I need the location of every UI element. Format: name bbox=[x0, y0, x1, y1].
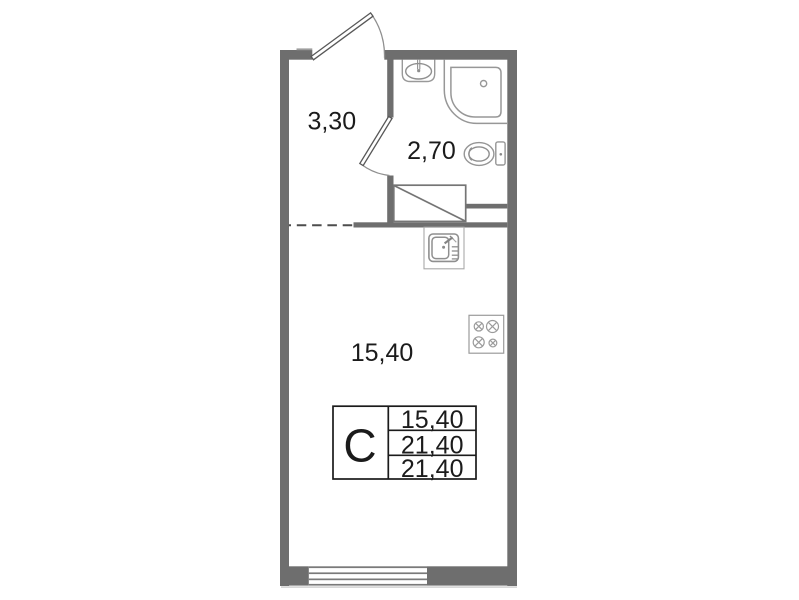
svg-text:21,40: 21,40 bbox=[401, 455, 464, 483]
svg-text:2,70: 2,70 bbox=[407, 137, 456, 165]
svg-text:15,40: 15,40 bbox=[351, 339, 414, 367]
svg-text:С: С bbox=[343, 420, 376, 472]
svg-text:15,40: 15,40 bbox=[401, 406, 464, 434]
svg-text:3,30: 3,30 bbox=[307, 108, 356, 136]
